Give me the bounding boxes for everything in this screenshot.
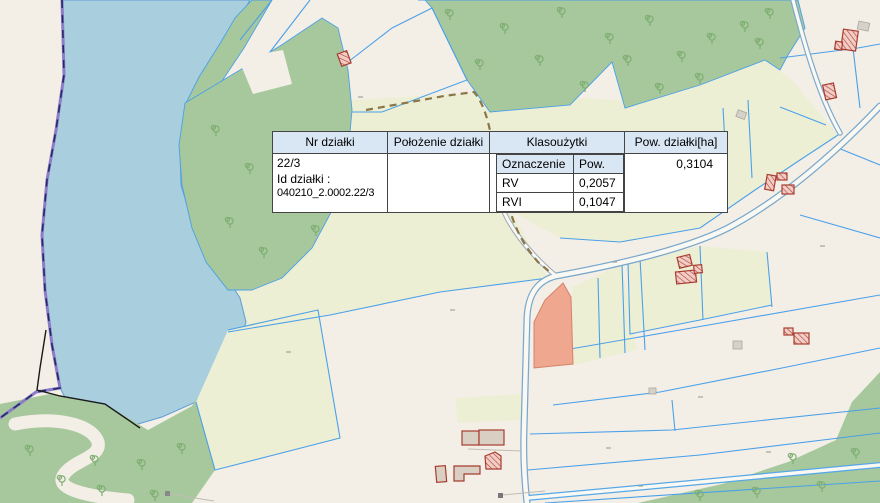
building xyxy=(841,29,859,51)
landuse-class: RV xyxy=(497,174,574,193)
popup-cell-location xyxy=(388,154,490,212)
popup-header-row: Nr działki Położenie działki Klasoużytki… xyxy=(273,132,727,154)
building xyxy=(784,328,793,335)
parcel-id-value: 040210_2.0002.22/3 xyxy=(277,187,383,200)
building xyxy=(694,265,703,274)
popup-header-landuse: Klasoużytki xyxy=(490,132,625,154)
building xyxy=(675,270,696,284)
landuse-header-designation: Oznaczenie xyxy=(497,155,574,174)
popup-body-row: 22/3 Id działki : 040210_2.0002.22/3 Ozn… xyxy=(273,154,727,212)
building xyxy=(823,83,837,100)
popup-header-location: Położenie działki xyxy=(388,132,490,154)
popup-header-nr: Nr działki xyxy=(273,132,388,154)
popup-cell-parcel-number: 22/3 Id działki : 040210_2.0002.22/3 xyxy=(273,154,388,212)
building xyxy=(765,174,776,190)
building xyxy=(479,430,504,445)
landuse-header-row: Oznaczenie Pow. xyxy=(497,155,624,174)
landuse-table: Oznaczenie Pow. RV 0,2057 RVI 0,1047 xyxy=(496,154,624,212)
building xyxy=(777,173,787,180)
landuse-row: RV 0,2057 xyxy=(497,174,624,193)
building xyxy=(835,41,843,50)
popup-cell-landuse: Oznaczenie Pow. RV 0,2057 RVI 0,1047 xyxy=(490,154,625,212)
building xyxy=(462,431,479,445)
landuse-header-area: Pow. xyxy=(574,155,624,174)
building xyxy=(677,254,692,268)
parcel-number: 22/3 xyxy=(277,156,383,170)
building xyxy=(485,452,501,469)
map-canvas[interactable] xyxy=(0,0,880,503)
parcel-id-label: Id działki : xyxy=(277,172,383,186)
map-viewport[interactable]: Nr działki Położenie działki Klasoużytki… xyxy=(0,0,880,503)
landuse-row: RVI 0,1047 xyxy=(497,193,624,212)
landuse-class: RVI xyxy=(497,193,574,212)
building xyxy=(435,466,446,483)
building xyxy=(782,185,794,194)
popup-header-area: Pow. działki[ha] xyxy=(625,132,727,154)
parcel-info-popup: Nr działki Położenie działki Klasoużytki… xyxy=(272,131,728,213)
building xyxy=(794,333,809,344)
landuse-area: 0,1047 xyxy=(574,193,624,212)
popup-cell-total-area: 0,3104 xyxy=(625,154,727,212)
landuse-area: 0,2057 xyxy=(574,174,624,193)
